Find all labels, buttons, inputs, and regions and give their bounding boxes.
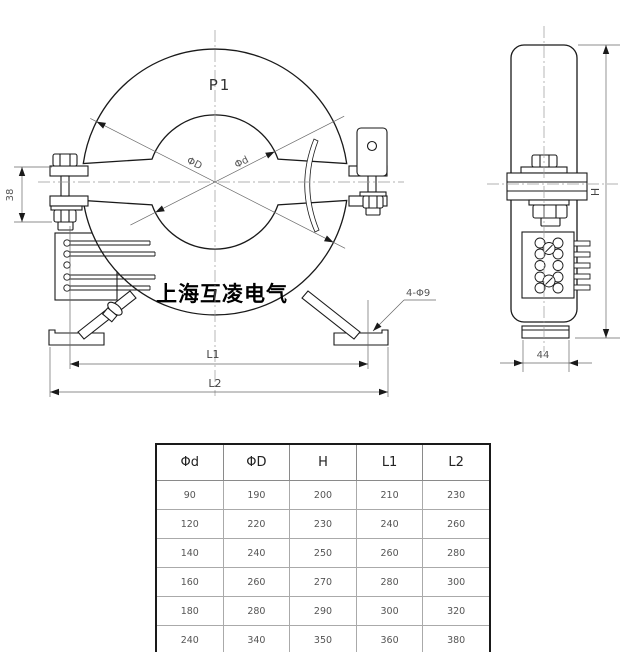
cell: 160 xyxy=(156,568,223,597)
hanger-tab xyxy=(357,128,387,176)
table-row: 140 240 250 260 280 xyxy=(156,539,490,568)
cell: 200 xyxy=(290,481,357,510)
label-44: 44 xyxy=(537,350,550,361)
label-inner-diameter: Φd xyxy=(233,155,251,171)
right-foot-bracket xyxy=(302,291,388,345)
cell: 360 xyxy=(356,626,423,652)
cell: 90 xyxy=(156,481,223,510)
label-holes: 4-Φ9 xyxy=(406,288,430,299)
cell: 230 xyxy=(423,481,490,510)
cell: 230 xyxy=(290,510,357,539)
dimension-table: Φd ΦD H L1 L2 90 190 200 210 230 120 220… xyxy=(155,443,491,652)
hanger-hole xyxy=(368,142,377,151)
dim-38 xyxy=(14,167,52,222)
left-clamp xyxy=(50,154,88,230)
cell: 240 xyxy=(156,626,223,652)
cell: 270 xyxy=(290,568,357,597)
cell: 300 xyxy=(423,568,490,597)
table-row: 240 340 350 360 380 xyxy=(156,626,490,652)
side-foot xyxy=(522,326,569,338)
cell: 120 xyxy=(156,510,223,539)
label-38: 38 xyxy=(5,189,16,202)
cell: 280 xyxy=(356,568,423,597)
col-header-inner-dia: Φd xyxy=(156,444,223,481)
table-row: 120 220 230 240 260 xyxy=(156,510,490,539)
brand-label: 上海互凌电气 xyxy=(156,282,288,306)
cell: 220 xyxy=(223,510,290,539)
col-header-l1: L1 xyxy=(356,444,423,481)
cell: 280 xyxy=(223,597,290,626)
table-row: 180 280 290 300 320 xyxy=(156,597,490,626)
engineering-drawing-page: 上海互凌电气 xyxy=(0,0,627,652)
dim-holes-leader xyxy=(373,300,436,331)
cell: 260 xyxy=(223,568,290,597)
cell: 290 xyxy=(290,597,357,626)
cell: 250 xyxy=(290,539,357,568)
cell: 380 xyxy=(423,626,490,652)
cell: 210 xyxy=(356,481,423,510)
right-clamp xyxy=(349,128,387,215)
left-bottom-nut xyxy=(54,210,76,222)
table-header-row: Φd ΦD H L1 L2 xyxy=(156,444,490,481)
technical-drawing: 上海互凌电气 xyxy=(0,0,627,445)
cell: 260 xyxy=(423,510,490,539)
label-p1: P1 xyxy=(209,76,232,94)
cell: 280 xyxy=(423,539,490,568)
side-top-bolt xyxy=(532,155,557,167)
cell: 140 xyxy=(156,539,223,568)
terminal-block-side xyxy=(522,232,590,298)
cell: 240 xyxy=(356,510,423,539)
label-l1: L1 xyxy=(206,348,219,361)
col-header-h: H xyxy=(290,444,357,481)
label-outer-diameter: ΦD xyxy=(185,155,204,172)
cell: 190 xyxy=(223,481,290,510)
cell: 340 xyxy=(223,626,290,652)
cell: 180 xyxy=(156,597,223,626)
cell: 260 xyxy=(356,539,423,568)
col-header-outer-dia: ΦD xyxy=(223,444,290,481)
right-bottom-nut xyxy=(363,196,383,208)
side-view xyxy=(507,45,590,338)
left-top-nut xyxy=(53,154,77,166)
cell: 320 xyxy=(423,597,490,626)
cell: 350 xyxy=(290,626,357,652)
label-h: H xyxy=(589,188,602,196)
col-header-l2: L2 xyxy=(423,444,490,481)
side-bottom-nut xyxy=(533,205,567,218)
cell: 300 xyxy=(356,597,423,626)
label-l2: L2 xyxy=(208,377,221,390)
table-row: 160 260 270 280 300 xyxy=(156,568,490,597)
cell: 240 xyxy=(223,539,290,568)
table-row: 90 190 200 210 230 xyxy=(156,481,490,510)
